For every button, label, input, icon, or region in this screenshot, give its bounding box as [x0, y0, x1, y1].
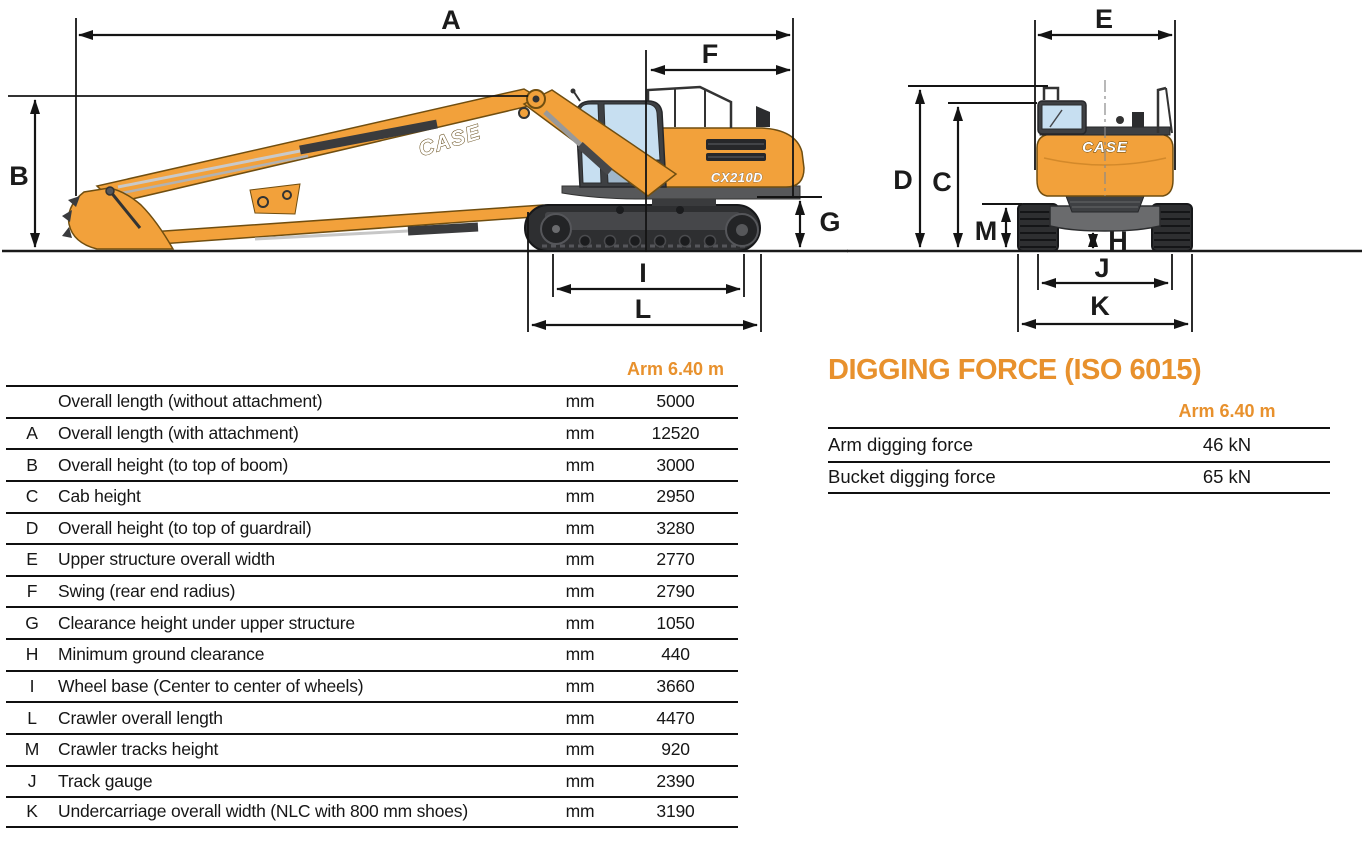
force-label: Bucket digging force — [828, 466, 1124, 488]
dim-description: Crawler tracks height — [58, 739, 547, 760]
dim-unit: mm — [547, 549, 613, 570]
svg-text:D: D — [893, 165, 913, 195]
digging-force-title: DIGGING FORCE (ISO 6015) — [828, 352, 1330, 388]
dim-value: 5000 — [613, 391, 738, 412]
dimension-g: G — [757, 197, 841, 247]
dim-unit: mm — [547, 518, 613, 539]
dim-value: 3190 — [613, 801, 738, 822]
svg-text:I: I — [639, 258, 647, 288]
table-row: Overall length (without attachment) mm 5… — [6, 385, 738, 417]
dim-value: 440 — [613, 644, 738, 665]
dim-letter: G — [6, 613, 58, 634]
dim-description: Swing (rear end radius) — [58, 581, 547, 602]
table-row: L Crawler overall length mm 4470 — [6, 701, 738, 733]
table-row: G Clearance height under upper structure… — [6, 606, 738, 638]
dimensions-table-section: Arm 6.40 m Overall length (without attac… — [6, 352, 738, 828]
svg-text:M: M — [975, 216, 998, 246]
table-row: I Wheel base (Center to center of wheels… — [6, 670, 738, 702]
dimension-j: J — [1038, 253, 1172, 290]
dimensions-table: Overall length (without attachment) mm 5… — [6, 385, 738, 828]
force-column-header-row: Arm 6.40 m — [828, 401, 1330, 427]
intake-cap — [1116, 116, 1124, 124]
rear-cab — [1038, 101, 1086, 134]
dim-description: Undercarriage overall width (NLC with 80… — [58, 801, 547, 822]
dim-letter: L — [6, 708, 58, 729]
svg-text:B: B — [9, 161, 29, 191]
dim-letter: B — [6, 455, 58, 476]
dim-value: 920 — [613, 739, 738, 760]
force-value: 46 kN — [1124, 434, 1330, 456]
table-row: K Undercarriage overall width (NLC with … — [6, 796, 738, 828]
table-row: H Minimum ground clearance mm 440 — [6, 638, 738, 670]
dim-description: Wheel base (Center to center of wheels) — [58, 676, 547, 697]
dim-unit: mm — [547, 423, 613, 444]
svg-text:E: E — [1095, 4, 1113, 34]
dim-value: 2390 — [613, 771, 738, 792]
dim-letter: K — [6, 801, 58, 822]
dim-description: Overall length (with attachment) — [58, 423, 547, 444]
dim-unit: mm — [547, 739, 613, 760]
dim-letter: I — [6, 676, 58, 697]
svg-text:K: K — [1090, 291, 1110, 321]
model-text: CX210D — [711, 170, 763, 185]
dim-letter: F — [6, 581, 58, 602]
dim-letter: C — [6, 486, 58, 507]
table-row: F Swing (rear end radius) mm 2790 — [6, 575, 738, 607]
dim-description: Cab height — [58, 486, 547, 507]
dim-value: 4470 — [613, 708, 738, 729]
dim-value: 3000 — [613, 455, 738, 476]
exhaust-shape — [756, 106, 770, 127]
dim-value: 12520 — [613, 423, 738, 444]
dim-description: Overall length (without attachment) — [58, 391, 547, 412]
table-row: M Crawler tracks height mm 920 — [6, 733, 738, 765]
dim-unit: mm — [547, 455, 613, 476]
svg-text:L: L — [635, 294, 652, 324]
svg-text:A: A — [441, 5, 461, 35]
dim-unit: mm — [547, 391, 613, 412]
dim-description: Minimum ground clearance — [58, 644, 547, 665]
boom-lower-chord — [150, 205, 547, 244]
dim-description: Overall height (to top of guardrail) — [58, 518, 547, 539]
dim-unit: mm — [547, 801, 613, 822]
svg-text:G: G — [819, 207, 840, 237]
undercarriage-frame — [1050, 196, 1160, 231]
dim-value: 2770 — [613, 549, 738, 570]
dim-unit: mm — [547, 486, 613, 507]
dim-value: 1050 — [613, 613, 738, 634]
engine-stack — [1132, 112, 1144, 127]
dim-letter: M — [6, 739, 58, 760]
dim-value: 2950 — [613, 486, 738, 507]
dim-unit: mm — [547, 676, 613, 697]
dim-value: 3660 — [613, 676, 738, 697]
side-view-diagram: CX210D — [0, 0, 850, 350]
dim-description: Track gauge — [58, 771, 547, 792]
dim-letter: D — [6, 518, 58, 539]
dim-description: Upper structure overall width — [58, 549, 547, 570]
table-row: B Overall height (to top of boom) mm 300… — [6, 448, 738, 480]
svg-text:C: C — [932, 167, 952, 197]
dim-unit: mm — [547, 771, 613, 792]
arm-column-header: Arm 6.40 m — [613, 359, 738, 380]
table-row: D Overall height (to top of guardrail) m… — [6, 512, 738, 544]
dim-description: Overall height (to top of boom) — [58, 455, 547, 476]
spec-sheet-page: CX210D — [0, 0, 1364, 843]
dim-unit: mm — [547, 644, 613, 665]
dim-letter: A — [6, 423, 58, 444]
svg-text:J: J — [1094, 253, 1109, 283]
dim-value: 3280 — [613, 518, 738, 539]
bucket — [62, 187, 173, 249]
dim-unit: mm — [547, 708, 613, 729]
crawler-tracks — [525, 205, 760, 251]
dim-letter: J — [6, 771, 58, 792]
svg-text:F: F — [702, 39, 719, 69]
table-row: Bucket digging force 65 kN — [828, 461, 1330, 495]
svg-text:H: H — [1108, 226, 1128, 256]
dimension-m: M — [975, 204, 1022, 247]
table-row: A Overall length (with attachment) mm 12… — [6, 417, 738, 449]
force-value: 65 kN — [1124, 466, 1330, 488]
dimension-i: I — [553, 254, 744, 297]
arm-column-header: Arm 6.40 m — [1124, 401, 1330, 422]
dim-unit: mm — [547, 613, 613, 634]
table-row: E Upper structure overall width mm 2770 — [6, 543, 738, 575]
dim-value: 2790 — [613, 581, 738, 602]
table-row: Arm digging force 46 kN — [828, 427, 1330, 461]
table-row: C Cab height mm 2950 — [6, 480, 738, 512]
force-label: Arm digging force — [828, 434, 1124, 456]
rear-view-diagram: CASE E — [845, 0, 1364, 350]
table-row: J Track gauge mm 2390 — [6, 765, 738, 797]
dim-letter: E — [6, 549, 58, 570]
dim-unit: mm — [547, 581, 613, 602]
dim-description: Crawler overall length — [58, 708, 547, 729]
dim-letter: H — [6, 644, 58, 665]
excavator-rear-art: CASE — [1018, 80, 1192, 251]
dimensions-column-header-row: Arm 6.40 m — [6, 352, 738, 385]
digging-force-table: Arm digging force 46 kN Bucket digging f… — [828, 427, 1330, 494]
dim-description: Clearance height under upper structure — [58, 613, 547, 634]
excavator-side-art: CX210D — [62, 87, 804, 251]
digging-force-section: DIGGING FORCE (ISO 6015) Arm 6.40 m Arm … — [828, 352, 1330, 494]
